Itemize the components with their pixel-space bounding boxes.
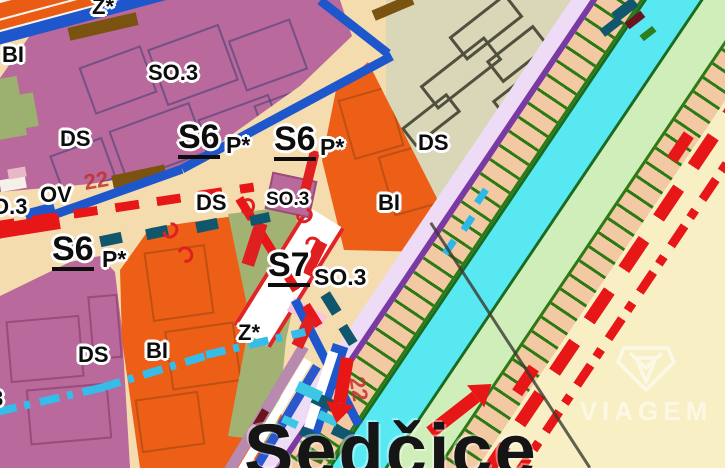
watermark-text: VIAGEM (580, 396, 713, 426)
zone-label-bi: BI (2, 44, 24, 66)
zone-label-ds: DS (196, 192, 227, 214)
zone-label-z: Z* (92, 0, 114, 18)
zone-label-s6: S6 (274, 122, 316, 161)
viagem-watermark: VIAGEM (566, 338, 725, 430)
zone-label-p: P* (102, 248, 126, 271)
zone-label-z: Z* (238, 322, 260, 344)
zone-label-bi: BI (146, 340, 168, 362)
parcel-line (228, 18, 308, 91)
zone-label-s6: S6 (52, 232, 94, 271)
gem-icon (618, 348, 674, 390)
zone-label-3: 3 (0, 388, 3, 410)
zone-label-ds: DS (418, 132, 449, 154)
parcel-line (5, 315, 84, 383)
zone-label-so3: SO.3 (266, 190, 309, 209)
zone-label-bi: BI (378, 192, 400, 214)
route-marker-22: 22 (345, 375, 371, 403)
zone-label-ov: OV (40, 184, 72, 206)
zone-label-so3: SO.3 (148, 62, 198, 84)
structure-marker (321, 291, 342, 315)
zone-label-s7: S7 (268, 248, 310, 287)
zone-label-ds: DS (78, 344, 109, 366)
place-name: Sedčice (244, 414, 538, 468)
zone-label-s6: S6 (178, 120, 220, 159)
zone-label-p: P* (226, 134, 250, 157)
route-marker-22: 22 (82, 168, 110, 194)
zoning-map-canvas[interactable]: Z*BISO.3DSS6P*S6P*DSO.3OVDSSO.3S6P*BIS7S… (0, 0, 725, 468)
zone-label-o3: O.3 (0, 196, 27, 218)
parcel-line (135, 391, 206, 453)
parcel-line (78, 45, 157, 115)
limit-mark (461, 215, 476, 232)
zone-label-p: P* (320, 136, 344, 159)
zone-label-ds: DS (60, 128, 91, 150)
zone-label-so3: SO.3 (314, 266, 366, 289)
limit-mark (474, 188, 489, 205)
structure-marker (99, 232, 123, 247)
